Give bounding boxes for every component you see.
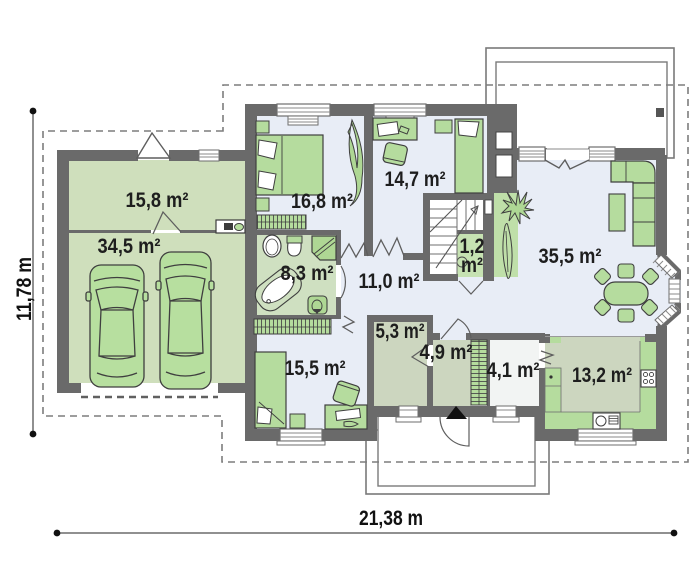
svg-text:16,8 m²: 16,8 m² (291, 190, 353, 213)
svg-text:11,0 m²: 11,0 m² (359, 270, 420, 293)
svg-text:m²: m² (461, 254, 483, 277)
svg-text:4,1 m²: 4,1 m² (487, 359, 540, 382)
svg-text:11,78 m: 11,78 m (13, 257, 36, 321)
svg-text:14,7 m²: 14,7 m² (385, 168, 446, 191)
svg-text:34,5 m²: 34,5 m² (98, 235, 161, 258)
svg-text:15,8 m²: 15,8 m² (126, 189, 189, 212)
svg-text:13,2 m²: 13,2 m² (572, 364, 632, 387)
svg-text:4,9 m²: 4,9 m² (420, 341, 473, 364)
svg-text:5,3 m²: 5,3 m² (376, 320, 425, 343)
svg-text:35,5 m²: 35,5 m² (539, 245, 602, 268)
svg-text:21,38 m: 21,38 m (359, 507, 423, 530)
svg-text:8,3 m²: 8,3 m² (281, 262, 334, 285)
svg-text:15,5 m²: 15,5 m² (285, 357, 346, 380)
